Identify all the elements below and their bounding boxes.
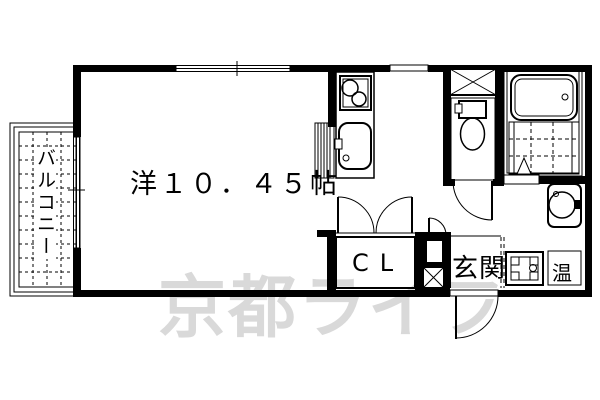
entrance-threshold: [450, 290, 498, 296]
closet-door-left-arc: [338, 197, 374, 233]
entrance-label: 玄関: [452, 248, 506, 285]
closet-door-left: [338, 197, 374, 233]
wall-bottom-right: [498, 290, 592, 297]
toilet-door: [453, 181, 492, 220]
bath-door-triangle-icon: [517, 158, 531, 174]
water-heater-label: 温: [552, 257, 572, 286]
top-window: [176, 61, 290, 76]
kitchen-window: [390, 64, 428, 73]
stove-icon: [340, 76, 371, 110]
wall-right: [585, 65, 592, 297]
washing-machine-pan-icon: [506, 252, 543, 285]
bathtub-icon: [511, 75, 577, 120]
shower-floor: [509, 122, 579, 174]
closet-door-right-arc: [376, 197, 412, 233]
washbasin-icon: [548, 184, 582, 227]
wall-kitchen-stub: [328, 65, 336, 127]
room-size-label: 洋１０．４５帖: [130, 162, 340, 201]
wall-closet-stub-v: [327, 232, 336, 297]
pipe-shaft-column: [423, 218, 446, 288]
balcony-label: バルコニー: [34, 147, 56, 259]
bathroom: [504, 67, 582, 184]
entrance-door-arc: [456, 296, 498, 338]
floor-plan: 京都ライフ: [0, 0, 600, 400]
wall-bottom-left: [73, 290, 450, 297]
toilet-icon: [455, 101, 486, 150]
toilet-room: [450, 69, 496, 220]
entrance-door: [450, 288, 498, 339]
pipe-shaft-x-icon: [423, 267, 444, 288]
wall-below-bath: [538, 176, 585, 184]
closet-door-right: [376, 197, 412, 233]
storage-cell: [426, 240, 443, 263]
storage-shelf-x-icon: [450, 69, 496, 95]
kitchen-sink-icon: [335, 123, 371, 169]
closet-label: CL: [352, 249, 404, 277]
bath-entry-threshold: [504, 175, 539, 184]
toilet-door-arc: [453, 181, 492, 220]
